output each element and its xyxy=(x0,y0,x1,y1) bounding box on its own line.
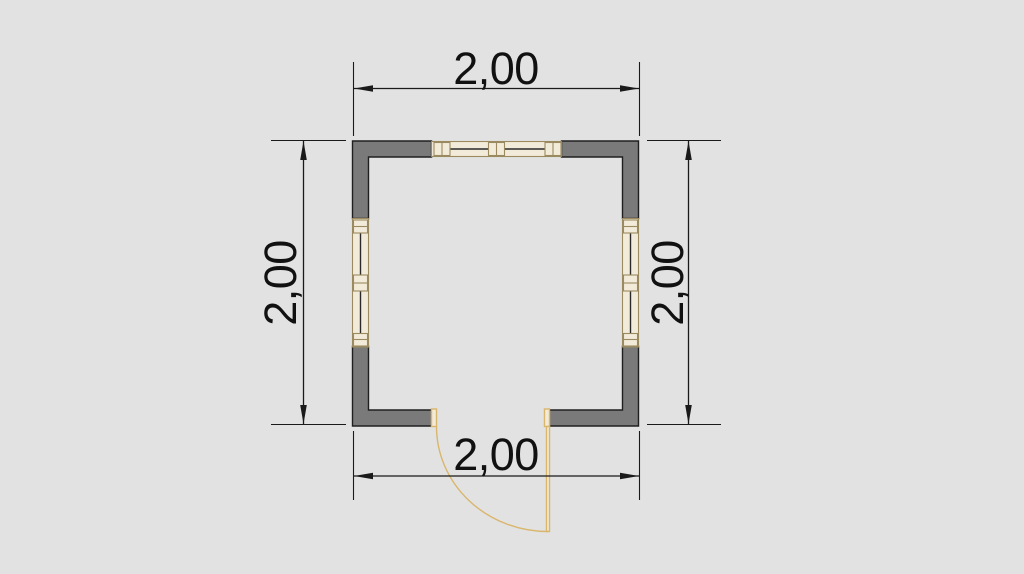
dimension-label-top: 2,00 xyxy=(453,43,539,94)
door-jamb-left xyxy=(432,409,437,427)
door-jamb-right xyxy=(545,409,550,427)
dimension-label-left: 2,00 xyxy=(255,240,306,326)
door-leaf xyxy=(547,427,550,532)
window-west xyxy=(353,219,369,348)
floor-plan-canvas: 2,00 2,00 2,00 2,00 xyxy=(0,0,1024,574)
dimension-label-bottom: 2,00 xyxy=(453,429,539,480)
window-north xyxy=(432,142,562,157)
dimension-label-right: 2,00 xyxy=(642,240,693,326)
window-east xyxy=(623,219,639,348)
